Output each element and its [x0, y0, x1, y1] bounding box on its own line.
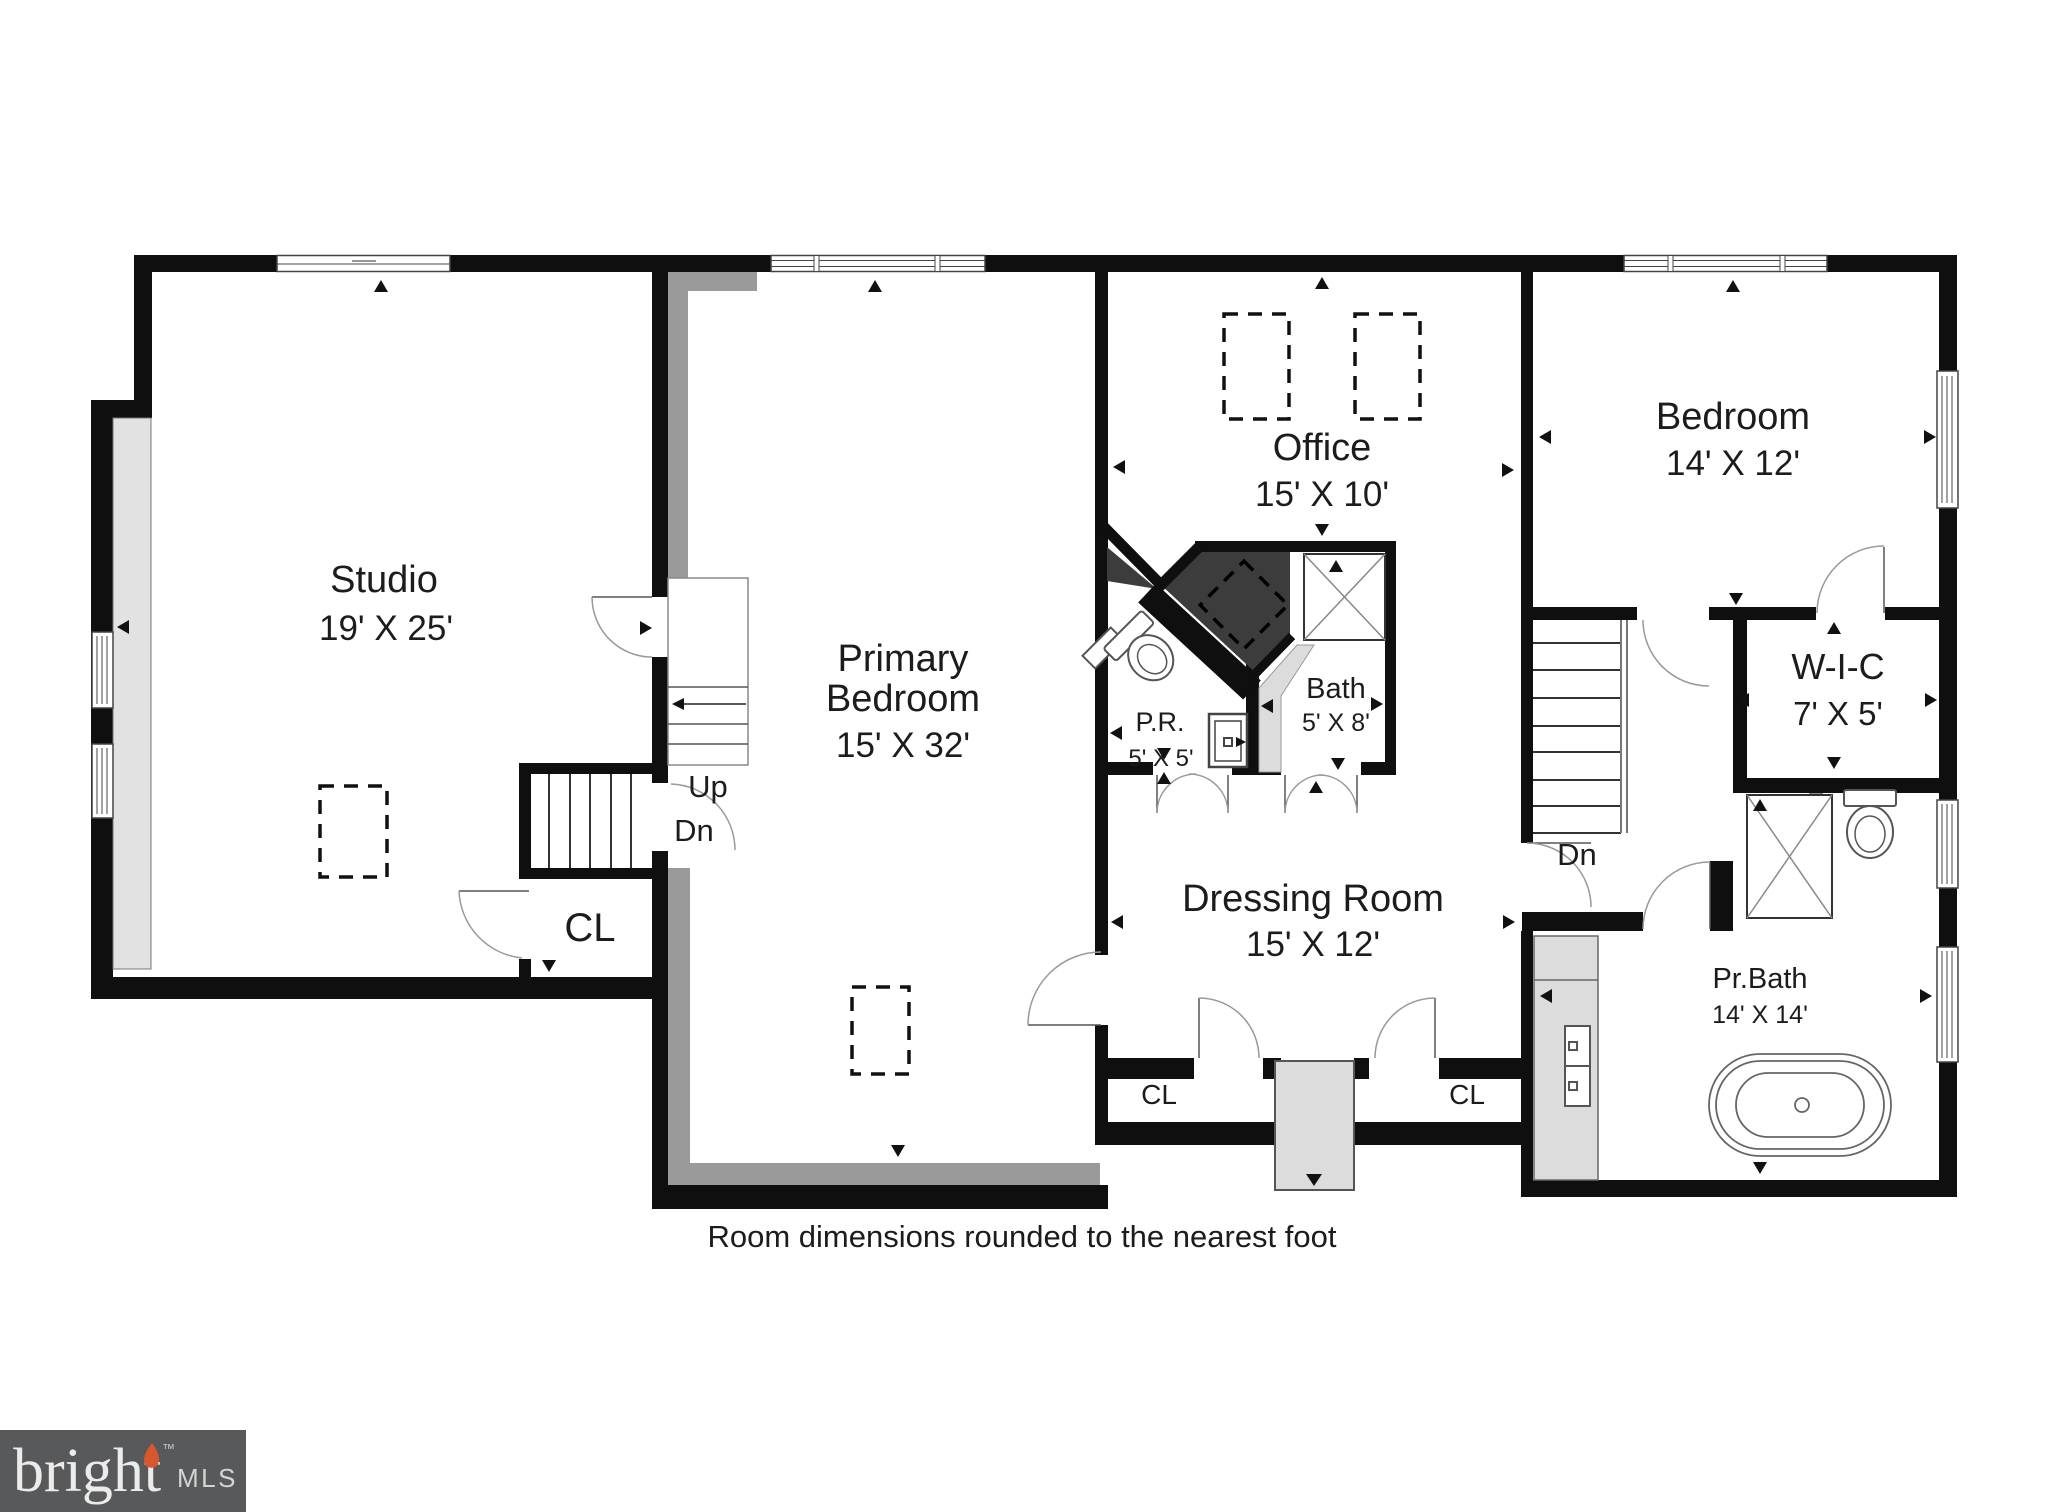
svg-text:15' X 32': 15' X 32'	[836, 726, 970, 765]
svg-text:Dn: Dn	[674, 813, 714, 848]
svg-text:15' X 10': 15' X 10'	[1255, 475, 1389, 514]
svg-text:5' X 8': 5' X 8'	[1302, 709, 1370, 737]
svg-text:Primary: Primary	[838, 638, 969, 680]
svg-text:14' X 12': 14' X 12'	[1666, 444, 1800, 483]
svg-text:CL: CL	[1141, 1079, 1177, 1110]
svg-text:Room dimensions rounded to the: Room dimensions rounded to the nearest f…	[708, 1219, 1337, 1254]
svg-text:Office: Office	[1273, 427, 1372, 469]
svg-text:Studio: Studio	[330, 559, 438, 601]
svg-text:Pr.Bath: Pr.Bath	[1712, 963, 1807, 995]
svg-text:Up: Up	[688, 769, 728, 804]
svg-text:P.R.: P.R.	[1135, 707, 1184, 737]
svg-text:Bedroom: Bedroom	[1656, 396, 1810, 438]
svg-text:Dn: Dn	[1557, 837, 1597, 872]
svg-text:Dressing Room: Dressing Room	[1182, 878, 1444, 920]
svg-text:15' X 12': 15' X 12'	[1246, 925, 1380, 964]
svg-text:bright: bright	[13, 1437, 161, 1505]
svg-text:CL: CL	[1449, 1079, 1485, 1110]
svg-text:14' X 14': 14' X 14'	[1712, 1001, 1808, 1029]
svg-text:™: ™	[162, 1441, 175, 1456]
svg-text:Bedroom: Bedroom	[826, 678, 980, 720]
svg-text:7' X 5': 7' X 5'	[1793, 695, 1883, 732]
svg-text:19' X 25': 19' X 25'	[319, 609, 453, 648]
svg-text:W-I-C: W-I-C	[1791, 646, 1884, 687]
svg-text:CL: CL	[564, 906, 615, 950]
svg-text:Bath: Bath	[1306, 673, 1366, 705]
svg-text:MLS: MLS	[177, 1463, 238, 1493]
